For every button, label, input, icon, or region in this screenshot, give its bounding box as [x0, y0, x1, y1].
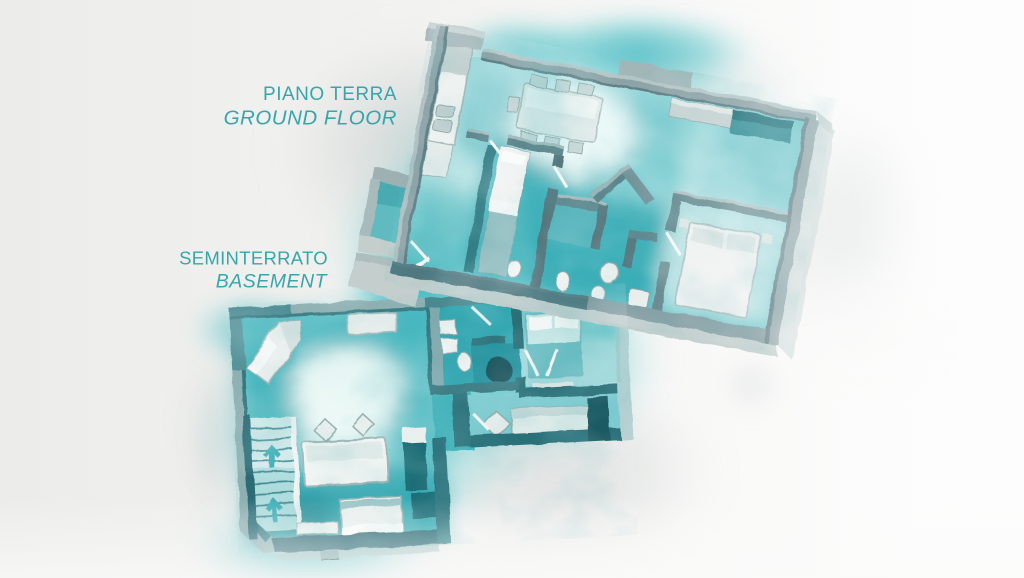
svg-text:GROUND FLOOR: GROUND FLOOR	[224, 107, 397, 130]
svg-text:PIANO TERRA: PIANO TERRA	[263, 84, 397, 105]
svg-text:SEMINTERRATO: SEMINTERRATO	[179, 248, 328, 269]
svg-text:BASEMENT: BASEMENT	[216, 271, 329, 293]
